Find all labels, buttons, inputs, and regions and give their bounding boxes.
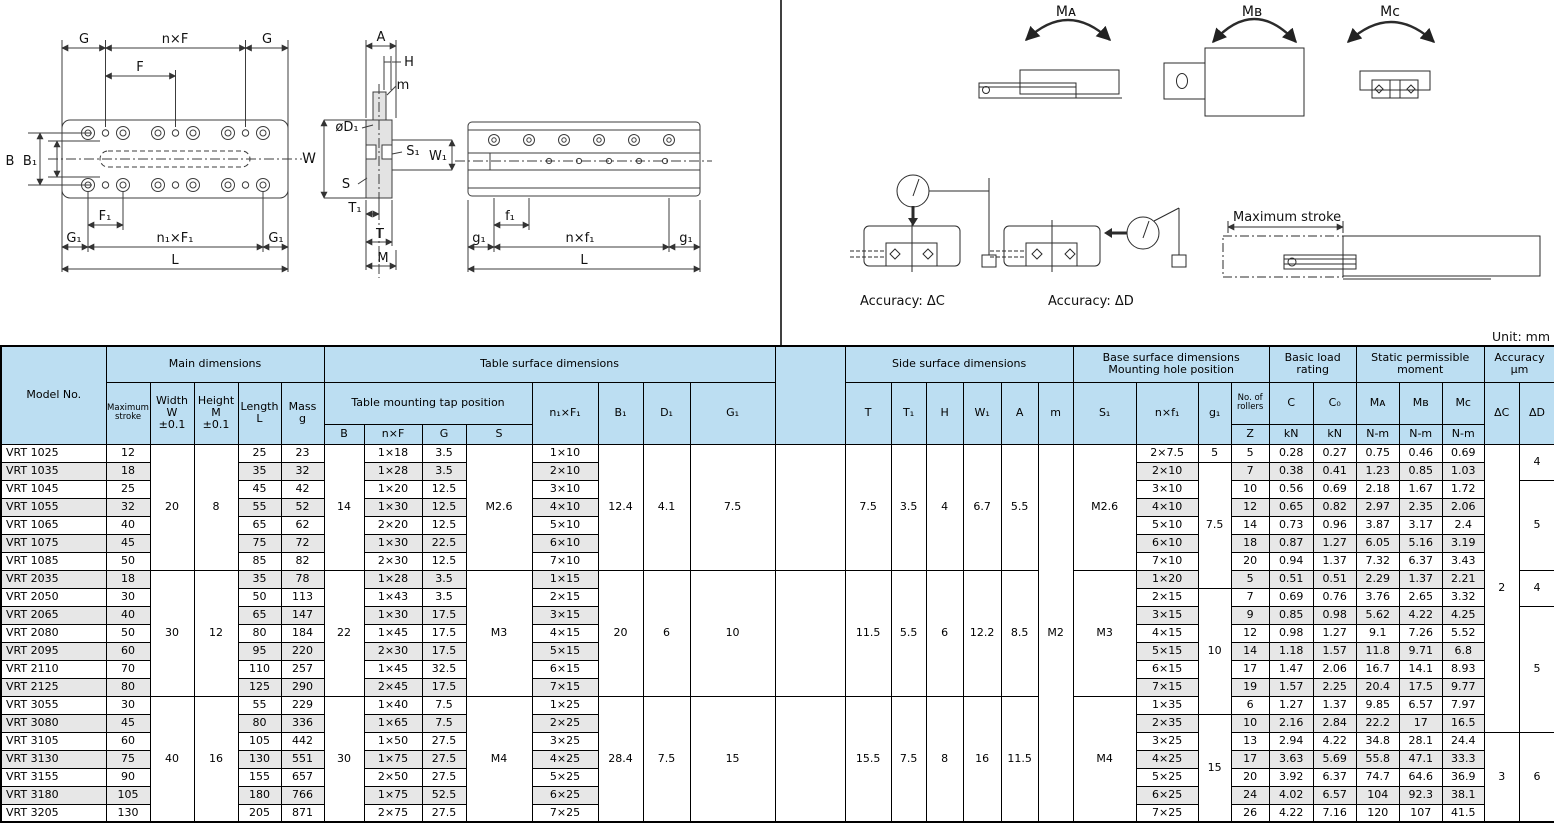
cell-ma: 3.76 bbox=[1356, 588, 1399, 606]
cell-g1cap: 10 bbox=[690, 570, 775, 696]
cell-c0: 0.96 bbox=[1313, 516, 1356, 534]
max-stroke-diagram bbox=[1223, 221, 1540, 279]
cell-mass: 290 bbox=[281, 678, 324, 696]
cell-c: 0.56 bbox=[1269, 480, 1313, 498]
svg-text:n×F: n×F bbox=[162, 32, 189, 47]
accuracy-dd-diagram bbox=[990, 208, 1186, 272]
svg-text:Mᴀ: Mᴀ bbox=[1056, 4, 1076, 20]
cell-mc: 4.25 bbox=[1442, 606, 1484, 624]
cell-nxF: 2×30 bbox=[364, 642, 422, 660]
cell-mb: 47.1 bbox=[1399, 750, 1442, 768]
column-header: Mᴄ bbox=[1442, 382, 1484, 424]
table-row: VRT 20351830123578221×283.5M31×152061011… bbox=[1, 570, 1554, 588]
svg-text:øD₁: øD₁ bbox=[335, 120, 358, 135]
svg-text:m: m bbox=[397, 78, 410, 93]
column-header: Side surface dimensions bbox=[845, 346, 1073, 382]
cell-mass: 551 bbox=[281, 750, 324, 768]
cell-nxF: 2×20 bbox=[364, 516, 422, 534]
cell-c: 0.65 bbox=[1269, 498, 1313, 516]
cell-b1: 12.4 bbox=[598, 444, 643, 570]
cell-model: VRT 1085 bbox=[1, 552, 106, 570]
cell-model: VRT 2035 bbox=[1, 570, 106, 588]
cell-nxF: 1×65 bbox=[364, 714, 422, 732]
cell-c0: 1.37 bbox=[1313, 552, 1356, 570]
cell-nxF: 1×28 bbox=[364, 570, 422, 588]
cell-c0: 0.82 bbox=[1313, 498, 1356, 516]
cell-mb: 14.1 bbox=[1399, 660, 1442, 678]
cell-nxf1: 3×10 bbox=[1136, 480, 1198, 498]
cell-g: 27.5 bbox=[422, 732, 466, 750]
cell-nxf1: 4×25 bbox=[1136, 750, 1198, 768]
svg-text:W: W bbox=[302, 151, 316, 167]
plan-view-labels: G n×F G F B B₁ F₁ G₁ n₁×F₁ G₁ L bbox=[6, 32, 284, 268]
cell-ma: 1.23 bbox=[1356, 462, 1399, 480]
cell-n1xF1: 1×10 bbox=[532, 444, 598, 462]
cell-mass: 220 bbox=[281, 642, 324, 660]
cell-mb: 1.67 bbox=[1399, 480, 1442, 498]
cell-n1xF1: 4×25 bbox=[532, 750, 598, 768]
cell-n1xF1: 6×25 bbox=[532, 786, 598, 804]
cell-mc: 9.77 bbox=[1442, 678, 1484, 696]
cell-g: 3.5 bbox=[422, 588, 466, 606]
cell-g: 17.5 bbox=[422, 606, 466, 624]
cell-dC: 3 bbox=[1484, 732, 1519, 822]
cell-stroke: 50 bbox=[106, 552, 150, 570]
cell-dD: 5 bbox=[1519, 606, 1554, 732]
cell-model: VRT 2095 bbox=[1, 642, 106, 660]
cell-mc: 7.97 bbox=[1442, 696, 1484, 714]
svg-text:B: B bbox=[6, 154, 15, 169]
cell-z: 19 bbox=[1231, 678, 1269, 696]
cell-mass: 871 bbox=[281, 804, 324, 822]
cell-mc: 8.93 bbox=[1442, 660, 1484, 678]
cell-ma: 20.4 bbox=[1356, 678, 1399, 696]
cell-length: 110 bbox=[238, 660, 281, 678]
cell-model: VRT 1035 bbox=[1, 462, 106, 480]
cell-n1xF1: 3×10 bbox=[532, 480, 598, 498]
cell-mc: 1.72 bbox=[1442, 480, 1484, 498]
cell-mb: 9.71 bbox=[1399, 642, 1442, 660]
cell-ma: 11.8 bbox=[1356, 642, 1399, 660]
cell-model: VRT 2065 bbox=[1, 606, 106, 624]
cell-c0: 0.41 bbox=[1313, 462, 1356, 480]
cell-mb: 17 bbox=[1399, 714, 1442, 732]
cell-g: 12.5 bbox=[422, 516, 466, 534]
cell-c0: 5.69 bbox=[1313, 750, 1356, 768]
cell-mass: 113 bbox=[281, 588, 324, 606]
cell-model: VRT 3080 bbox=[1, 714, 106, 732]
cell-z: 14 bbox=[1231, 642, 1269, 660]
cell-z: 5 bbox=[1231, 570, 1269, 588]
cell-t1: 5.5 bbox=[891, 570, 926, 696]
cell-stroke: 18 bbox=[106, 570, 150, 588]
cell-dD: 6 bbox=[1519, 732, 1554, 822]
column-header: g₁ bbox=[1198, 382, 1231, 444]
cell-z: 7 bbox=[1231, 462, 1269, 480]
cell-stroke: 12 bbox=[106, 444, 150, 462]
cell-mc: 3.19 bbox=[1442, 534, 1484, 552]
cell-c0: 0.98 bbox=[1313, 606, 1356, 624]
cell-nxF: 1×30 bbox=[364, 498, 422, 516]
cell-z: 14 bbox=[1231, 516, 1269, 534]
cell-ma: 55.8 bbox=[1356, 750, 1399, 768]
cell-a: 5.5 bbox=[1001, 444, 1038, 570]
cell-model: VRT 3130 bbox=[1, 750, 106, 768]
cell-mb: 3.17 bbox=[1399, 516, 1442, 534]
cell-width: 30 bbox=[150, 570, 194, 696]
cell-n1xF1: 2×10 bbox=[532, 462, 598, 480]
cell-nxF: 1×75 bbox=[364, 750, 422, 768]
cell-nxF: 1×50 bbox=[364, 732, 422, 750]
cell-g: 12.5 bbox=[422, 552, 466, 570]
cell-s1: M2.6 bbox=[1073, 444, 1136, 570]
cell-z: 20 bbox=[1231, 552, 1269, 570]
cell-mass: 62 bbox=[281, 516, 324, 534]
cell-d1: 6 bbox=[643, 570, 690, 696]
cell-nxF: 1×30 bbox=[364, 606, 422, 624]
cell-model: VRT 2110 bbox=[1, 660, 106, 678]
cell-mb: 1.37 bbox=[1399, 570, 1442, 588]
cell-nxf1: 6×10 bbox=[1136, 534, 1198, 552]
cell-ma: 3.87 bbox=[1356, 516, 1399, 534]
column-header: n×f₁ bbox=[1136, 382, 1198, 444]
cell-c: 1.27 bbox=[1269, 696, 1313, 714]
cell-ma: 9.85 bbox=[1356, 696, 1399, 714]
cell-dC: 2 bbox=[1484, 444, 1519, 732]
cell-model: VRT 1055 bbox=[1, 498, 106, 516]
cell-nxF: 2×30 bbox=[364, 552, 422, 570]
cell-mass: 147 bbox=[281, 606, 324, 624]
cell-nxF: 1×75 bbox=[364, 786, 422, 804]
svg-text:S: S bbox=[342, 177, 350, 192]
cell-b: 30 bbox=[324, 696, 364, 822]
cell-stroke: 30 bbox=[106, 696, 150, 714]
cell-c: 1.18 bbox=[1269, 642, 1313, 660]
column-header: Width W ±0.1 bbox=[150, 382, 194, 444]
cell-stroke: 18 bbox=[106, 462, 150, 480]
cell-mb: 6.57 bbox=[1399, 696, 1442, 714]
cell-nxF: 1×45 bbox=[364, 624, 422, 642]
cell-nxf1: 6×25 bbox=[1136, 786, 1198, 804]
column-header: Maximum stroke bbox=[106, 382, 150, 444]
column-header: D₁ bbox=[643, 382, 690, 444]
cell-mb: 7.26 bbox=[1399, 624, 1442, 642]
cell-c: 0.85 bbox=[1269, 606, 1313, 624]
cell-mb: 2.65 bbox=[1399, 588, 1442, 606]
cell-s: M2.6 bbox=[466, 444, 532, 570]
cell-mass: 32 bbox=[281, 462, 324, 480]
cell-z: 13 bbox=[1231, 732, 1269, 750]
cell-mass: 72 bbox=[281, 534, 324, 552]
cell-ma: 9.1 bbox=[1356, 624, 1399, 642]
column-header: Model No. bbox=[1, 346, 106, 444]
cell-z: 10 bbox=[1231, 714, 1269, 732]
column-header: n×F bbox=[364, 424, 422, 444]
cell-length: 55 bbox=[238, 498, 281, 516]
cell-s: M3 bbox=[466, 570, 532, 696]
svg-text:L: L bbox=[580, 253, 588, 268]
cell-length: 65 bbox=[238, 516, 281, 534]
cell-c0: 6.37 bbox=[1313, 768, 1356, 786]
unit-label: Unit: mm bbox=[1492, 329, 1550, 344]
cell-n1xF1: 5×10 bbox=[532, 516, 598, 534]
cell-length: 205 bbox=[238, 804, 281, 822]
svg-text:H: H bbox=[404, 55, 414, 70]
cell-length: 35 bbox=[238, 570, 281, 588]
column-header: Static permissible moment bbox=[1356, 346, 1484, 382]
cell-b: 14 bbox=[324, 444, 364, 570]
column-header: Length L bbox=[238, 382, 281, 444]
cell-mass: 442 bbox=[281, 732, 324, 750]
cell-c: 2.16 bbox=[1269, 714, 1313, 732]
cell-nxf1: 6×15 bbox=[1136, 660, 1198, 678]
cell-mass: 52 bbox=[281, 498, 324, 516]
cell-mb: 5.16 bbox=[1399, 534, 1442, 552]
column-header: B₁ bbox=[598, 382, 643, 444]
cell-h: 8 bbox=[926, 696, 963, 822]
cell-c: 0.98 bbox=[1269, 624, 1313, 642]
svg-text:G: G bbox=[79, 32, 89, 47]
cell-g: 17.5 bbox=[422, 624, 466, 642]
cell-dD: 5 bbox=[1519, 480, 1554, 570]
column-header: G₁ bbox=[690, 382, 775, 444]
cell-n1xF1: 4×10 bbox=[532, 498, 598, 516]
svg-text:g₁: g₁ bbox=[679, 231, 692, 246]
svg-text:W₁: W₁ bbox=[429, 149, 447, 164]
column-header: A bbox=[1001, 382, 1038, 444]
cell-mb: 2.35 bbox=[1399, 498, 1442, 516]
cell-model: VRT 2125 bbox=[1, 678, 106, 696]
svg-text:G₁: G₁ bbox=[66, 231, 81, 246]
cell-stroke: 32 bbox=[106, 498, 150, 516]
cell-mc: 2.21 bbox=[1442, 570, 1484, 588]
cell-length: 75 bbox=[238, 534, 281, 552]
cell-mc: 41.5 bbox=[1442, 804, 1484, 822]
column-header: T bbox=[845, 382, 891, 444]
svg-text:M: M bbox=[377, 251, 388, 266]
svg-text:G₁: G₁ bbox=[268, 231, 283, 246]
cell-stroke: 40 bbox=[106, 516, 150, 534]
cell-nxF: 1×28 bbox=[364, 462, 422, 480]
column-header: S bbox=[466, 424, 532, 444]
column-header: Mass g bbox=[281, 382, 324, 444]
cell-c0: 2.84 bbox=[1313, 714, 1356, 732]
cell-nxF: 2×75 bbox=[364, 804, 422, 822]
cell-c0: 2.06 bbox=[1313, 660, 1356, 678]
cell-stroke: 45 bbox=[106, 534, 150, 552]
cell-nxF: 1×20 bbox=[364, 480, 422, 498]
datasheet-page: G n×F G F B B₁ F₁ G₁ n₁×F₁ G₁ L bbox=[0, 0, 1554, 828]
cell-c0: 1.27 bbox=[1313, 534, 1356, 552]
cell-g: 12.5 bbox=[422, 480, 466, 498]
cell-mass: 766 bbox=[281, 786, 324, 804]
cell-z: 24 bbox=[1231, 786, 1269, 804]
side-elevation-labels: f₁ g₁ n×f₁ g₁ L bbox=[472, 209, 692, 268]
cell-c: 2.94 bbox=[1269, 732, 1313, 750]
cell-nxF: 1×40 bbox=[364, 696, 422, 714]
column-header: n₁×F₁ bbox=[532, 382, 598, 444]
cell-n1xF1: 7×10 bbox=[532, 552, 598, 570]
cell-d1: 4.1 bbox=[643, 444, 690, 570]
cell-stroke: 40 bbox=[106, 606, 150, 624]
cell-length: 55 bbox=[238, 696, 281, 714]
cell-g1cap: 7.5 bbox=[690, 444, 775, 570]
cell-a: 8.5 bbox=[1001, 570, 1038, 696]
svg-text:F: F bbox=[136, 60, 143, 75]
svg-text:Accuracy: ΔD: Accuracy: ΔD bbox=[1048, 294, 1134, 309]
moment-mb-diagram bbox=[1164, 19, 1304, 116]
cell-c: 0.87 bbox=[1269, 534, 1313, 552]
cell-length: 45 bbox=[238, 480, 281, 498]
cell-z: 17 bbox=[1231, 660, 1269, 678]
cell-h: 6 bbox=[926, 570, 963, 696]
cell-mc: 33.3 bbox=[1442, 750, 1484, 768]
cell-mc: 3.43 bbox=[1442, 552, 1484, 570]
cell-c0: 1.37 bbox=[1313, 696, 1356, 714]
cell-z: 18 bbox=[1231, 534, 1269, 552]
cell-n1xF1: 7×15 bbox=[532, 678, 598, 696]
cell-n1xF1: 5×15 bbox=[532, 642, 598, 660]
cell-z: 6 bbox=[1231, 696, 1269, 714]
cell-nxf1: 7×10 bbox=[1136, 552, 1198, 570]
cell-nxF: 2×50 bbox=[364, 768, 422, 786]
column-header: S₁ bbox=[1073, 382, 1136, 444]
cell-z: 20 bbox=[1231, 768, 1269, 786]
column-header bbox=[775, 346, 845, 444]
cell-ma: 2.18 bbox=[1356, 480, 1399, 498]
cell-nxF: 1×30 bbox=[364, 534, 422, 552]
cell-mb: 0.46 bbox=[1399, 444, 1442, 462]
cell-c: 1.47 bbox=[1269, 660, 1313, 678]
cell-c0: 4.22 bbox=[1313, 732, 1356, 750]
cell-length: 65 bbox=[238, 606, 281, 624]
cell-g1: 15 bbox=[1198, 714, 1231, 822]
cell-height: 12 bbox=[194, 570, 238, 696]
cell-mc: 36.9 bbox=[1442, 768, 1484, 786]
cell-spacer bbox=[775, 696, 845, 822]
cell-n1xF1: 3×25 bbox=[532, 732, 598, 750]
cell-h: 4 bbox=[926, 444, 963, 570]
svg-text:G: G bbox=[262, 32, 272, 47]
cell-w1: 6.7 bbox=[963, 444, 1001, 570]
cell-g: 32.5 bbox=[422, 660, 466, 678]
cell-stroke: 75 bbox=[106, 750, 150, 768]
cell-length: 80 bbox=[238, 714, 281, 732]
cell-mc: 6.8 bbox=[1442, 642, 1484, 660]
cell-mass: 23 bbox=[281, 444, 324, 462]
cell-spacer bbox=[775, 444, 845, 570]
cell-c: 0.38 bbox=[1269, 462, 1313, 480]
svg-text:n×f₁: n×f₁ bbox=[566, 231, 595, 246]
cell-c0: 0.51 bbox=[1313, 570, 1356, 588]
cell-ma: 6.05 bbox=[1356, 534, 1399, 552]
cell-mass: 184 bbox=[281, 624, 324, 642]
column-header: H bbox=[926, 382, 963, 444]
cell-g: 27.5 bbox=[422, 804, 466, 822]
column-header: Base surface dimensions Mounting hole po… bbox=[1073, 346, 1269, 382]
cell-mb: 6.37 bbox=[1399, 552, 1442, 570]
cell-z: 12 bbox=[1231, 498, 1269, 516]
cell-g: 3.5 bbox=[422, 444, 466, 462]
svg-text:L: L bbox=[171, 253, 179, 268]
svg-text:B₁: B₁ bbox=[23, 154, 37, 169]
cell-n1xF1: 4×15 bbox=[532, 624, 598, 642]
cell-n1xF1: 3×15 bbox=[532, 606, 598, 624]
cell-length: 85 bbox=[238, 552, 281, 570]
column-header: m bbox=[1038, 382, 1073, 444]
cell-nxf1: 3×25 bbox=[1136, 732, 1198, 750]
cell-nxf1: 3×15 bbox=[1136, 606, 1198, 624]
cell-mc: 16.5 bbox=[1442, 714, 1484, 732]
cell-mass: 257 bbox=[281, 660, 324, 678]
cell-g1: 10 bbox=[1198, 588, 1231, 714]
cell-mb: 92.3 bbox=[1399, 786, 1442, 804]
cell-ma: 16.7 bbox=[1356, 660, 1399, 678]
cell-nxf1: 5×25 bbox=[1136, 768, 1198, 786]
cell-ma: 2.29 bbox=[1356, 570, 1399, 588]
technical-drawings: G n×F G F B B₁ F₁ G₁ n₁×F₁ G₁ L bbox=[0, 0, 1554, 345]
cell-mc: 1.03 bbox=[1442, 462, 1484, 480]
spec-table-head: Model No.Main dimensionsTable surface di… bbox=[1, 346, 1554, 444]
cell-t: 15.5 bbox=[845, 696, 891, 822]
cell-t1: 3.5 bbox=[891, 444, 926, 570]
cell-c: 3.92 bbox=[1269, 768, 1313, 786]
cell-s1: M3 bbox=[1073, 570, 1136, 696]
cell-nxf1: 5×10 bbox=[1136, 516, 1198, 534]
column-header: No. of rollers bbox=[1231, 382, 1269, 424]
cell-nxf1: 2×35 bbox=[1136, 714, 1198, 732]
cell-t: 11.5 bbox=[845, 570, 891, 696]
cell-nxf1: 1×20 bbox=[1136, 570, 1198, 588]
cell-mb: 64.6 bbox=[1399, 768, 1442, 786]
cell-b1: 20 bbox=[598, 570, 643, 696]
cell-stroke: 25 bbox=[106, 480, 150, 498]
cell-b1: 28.4 bbox=[598, 696, 643, 822]
cell-model: VRT 1065 bbox=[1, 516, 106, 534]
cell-w1: 16 bbox=[963, 696, 1001, 822]
column-header: Main dimensions bbox=[106, 346, 324, 382]
column-header: N-m bbox=[1399, 424, 1442, 444]
cell-nxf1: 7×15 bbox=[1136, 678, 1198, 696]
cell-mc: 3.32 bbox=[1442, 588, 1484, 606]
cell-nxF: 1×43 bbox=[364, 588, 422, 606]
cell-nxf1: 2×7.5 bbox=[1136, 444, 1198, 462]
column-header: ΔC bbox=[1484, 382, 1519, 444]
svg-text:T: T bbox=[375, 227, 384, 242]
cell-mb: 17.5 bbox=[1399, 678, 1442, 696]
spec-table-body: VRT 1025122082523141×183.5M2.61×1012.44.… bbox=[1, 444, 1554, 822]
cell-c0: 1.27 bbox=[1313, 624, 1356, 642]
cell-c: 3.63 bbox=[1269, 750, 1313, 768]
cell-g1: 5 bbox=[1198, 444, 1231, 462]
column-header: Z bbox=[1231, 424, 1269, 444]
cell-mc: 38.1 bbox=[1442, 786, 1484, 804]
cell-ma: 22.2 bbox=[1356, 714, 1399, 732]
cell-mb: 28.1 bbox=[1399, 732, 1442, 750]
svg-text:A: A bbox=[377, 30, 386, 45]
cell-length: 35 bbox=[238, 462, 281, 480]
cell-stroke: 105 bbox=[106, 786, 150, 804]
cell-model: VRT 3055 bbox=[1, 696, 106, 714]
cell-nxF: 1×45 bbox=[364, 660, 422, 678]
cell-width: 20 bbox=[150, 444, 194, 570]
cell-stroke: 30 bbox=[106, 588, 150, 606]
side-elevation-drawing bbox=[455, 122, 712, 272]
cell-b: 22 bbox=[324, 570, 364, 696]
cell-c: 0.28 bbox=[1269, 444, 1313, 462]
svg-text:S₁: S₁ bbox=[406, 144, 419, 159]
cell-z: 10 bbox=[1231, 480, 1269, 498]
